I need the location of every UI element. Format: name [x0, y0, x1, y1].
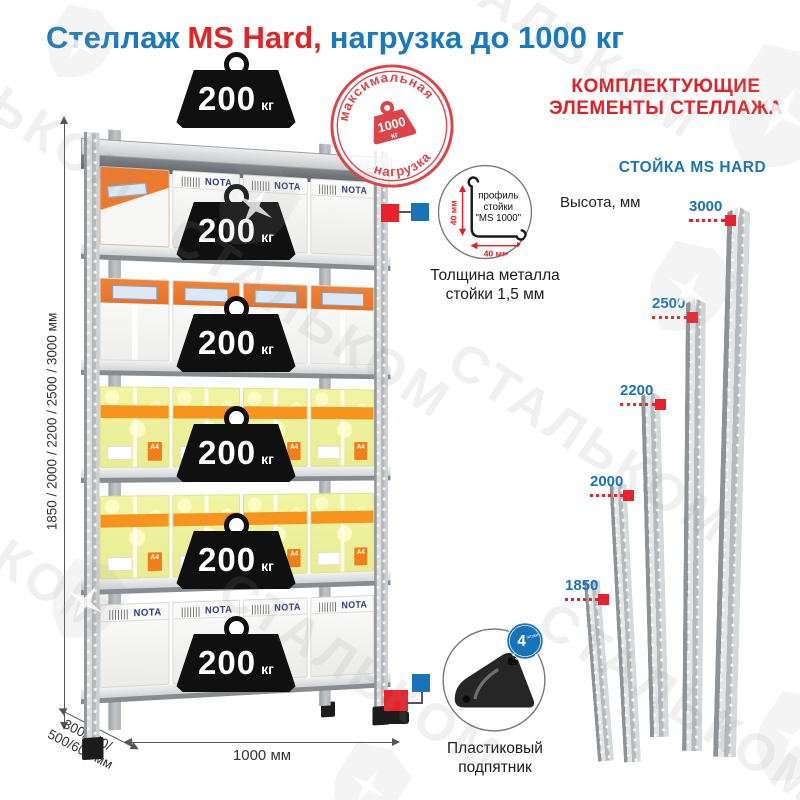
- title-suffix: нагрузка до 1000 кг: [330, 20, 624, 55]
- quantity-badge: 4 штуки в комплекте: [506, 622, 544, 660]
- badge-quantity: 4: [517, 633, 526, 650]
- components-heading-line2: ЭЛЕМЕНТЫ СТЕЛЛАЖА: [540, 98, 792, 120]
- callout-marker-red-bottom: [384, 690, 408, 711]
- paper-box-a4: A4: [100, 386, 170, 468]
- post-2500: [682, 299, 706, 751]
- load-value: 200: [198, 324, 256, 362]
- load-unit: кг: [261, 558, 274, 574]
- dotted-leader-line: [652, 316, 687, 319]
- height-leader: [565, 593, 609, 605]
- callout-marker-blue-bottom: [412, 674, 430, 692]
- dotted-leader-line: [590, 494, 623, 497]
- height-leader: [689, 214, 736, 226]
- dotted-leader-line: [620, 403, 655, 406]
- post-2000: [609, 482, 641, 763]
- load-unit: кг: [261, 451, 274, 467]
- weight-body: 200кг: [174, 314, 298, 372]
- profile-label-2: стойки: [483, 202, 513, 213]
- shelf-load-weight-icon: 200кг: [174, 52, 298, 128]
- height-callout-2000: 2000: [590, 474, 634, 501]
- a4-label: A4: [354, 547, 367, 565]
- post-2200: [641, 392, 669, 737]
- a4-label: A4: [354, 442, 367, 460]
- rack-front-post-left: [84, 132, 100, 746]
- profile-caption-line1: Толщина металла: [420, 266, 570, 285]
- box-brand-label: NOTA: [205, 605, 232, 617]
- paper-box-a4: A4: [311, 389, 375, 467]
- page-title: СтеллажMS Hard,нагрузка до 1000 кг: [46, 20, 624, 56]
- height-value: 3000: [689, 199, 736, 214]
- foot-caption-line1: Пластиковый: [425, 739, 565, 758]
- box-brand-label: NOTA: [134, 607, 162, 619]
- load-value: 200: [198, 644, 256, 682]
- height-value: 2000: [590, 474, 634, 489]
- paper-box-a4: A4: [311, 493, 375, 574]
- paper-box-nota: NOTA: [100, 602, 170, 688]
- product-infographic: СтеллажMS Hard,нагрузка до 1000 кг 1850 …: [0, 0, 800, 800]
- red-square-marker: [687, 312, 698, 323]
- weight-body: 200кг: [174, 70, 298, 128]
- height-leader: [652, 311, 698, 323]
- height-dimension-label: 1850 / 2000 / 2200 / 2500 / 3000 мм: [45, 117, 60, 727]
- paper-box-a4: A4: [100, 495, 170, 580]
- height-leader: [590, 489, 634, 501]
- post-section-subheading: СТОЙКА MS HARD: [590, 159, 795, 177]
- foot-caption: Пластиковый подпятник: [425, 739, 565, 777]
- height-value: 1850: [565, 578, 609, 593]
- shelf-load-weight-icon: 200кг: [174, 513, 298, 589]
- profile-dim-horizontal: 40 мм.: [484, 248, 511, 258]
- paper-box-orange-top: [311, 285, 375, 365]
- components-heading: КОМПЛЕКТУЮЩИЕ ЭЛЕМЕНТЫ СТЕЛЛАЖА: [540, 76, 792, 120]
- load-value: 200: [198, 541, 256, 579]
- height-callout-3000: 3000: [689, 199, 736, 226]
- red-square-marker: [655, 399, 666, 410]
- barcode: [319, 602, 337, 612]
- load-unit: кг: [261, 97, 274, 113]
- components-heading-line1: КОМПЛЕКТУЮЩИЕ: [540, 76, 792, 98]
- load-value: 200: [198, 80, 256, 118]
- rack-foot: [82, 737, 103, 760]
- callout-marker-red-top: [381, 204, 399, 222]
- profile-caption: Толщина металла стойки 1,5 мм: [420, 266, 570, 304]
- title-product-name: MS Hard,: [187, 20, 321, 55]
- height-callout-2200: 2200: [620, 383, 666, 410]
- a4-label: A4: [147, 552, 161, 571]
- load-value: 200: [198, 434, 256, 472]
- foot-caption-line2: подпятник: [425, 758, 565, 777]
- height-value: 2200: [620, 383, 666, 398]
- profile-caption-line2: стойки 1,5 мм: [420, 285, 570, 304]
- weight-body: 200кг: [174, 202, 298, 260]
- red-square-marker: [598, 594, 609, 605]
- shelf-load-weight-icon: 200кг: [174, 296, 298, 372]
- callout-marker-blue-top: [411, 203, 429, 221]
- height-dimension-line: [64, 118, 65, 728]
- shelf-load-weight-icon: 200кг: [174, 616, 298, 692]
- weight-body: 200кг: [174, 531, 298, 589]
- rack-front-post-right: [374, 151, 388, 716]
- weight-body: 200кг: [174, 634, 298, 692]
- stalkom-shield-watermark: [731, 673, 800, 800]
- profile-dim-vertical: 40 мм: [448, 200, 458, 225]
- a4-label: A4: [147, 442, 161, 461]
- barcode: [252, 604, 270, 614]
- height-section-label: Высота, мм: [560, 194, 640, 211]
- box-brand-label: NOTA: [274, 602, 301, 614]
- load-unit: кг: [261, 341, 274, 357]
- paper-box-orange-side: [100, 166, 170, 248]
- load-value: 200: [198, 212, 256, 250]
- dotted-leader-line: [689, 219, 725, 222]
- profile-label-1: профиль: [478, 191, 518, 202]
- dotted-leader-line: [565, 598, 598, 601]
- height-value: 2500: [652, 296, 698, 311]
- paper-box-nota: NOTA: [311, 595, 375, 677]
- height-callout-1850: 1850: [565, 578, 609, 605]
- red-square-marker: [623, 490, 634, 501]
- height-callout-2500: 2500: [652, 296, 698, 323]
- red-square-marker: [725, 215, 736, 226]
- load-unit: кг: [261, 229, 274, 245]
- post-1850: [584, 579, 614, 762]
- height-leader: [620, 398, 666, 410]
- shelf-load-weight-icon: 200кг: [174, 406, 298, 482]
- weight-body: 200кг: [174, 424, 298, 482]
- box-brand-label: NOTA: [342, 600, 368, 611]
- rack-foot-detail: [383, 711, 409, 724]
- max-load-stamp: максимальная нагрузка 1000 кг: [328, 62, 456, 190]
- load-unit: кг: [261, 661, 274, 677]
- post-3000: [713, 207, 750, 757]
- shelf-load-weight-icon: 200кг: [174, 184, 298, 260]
- profile-label-3: "MS 1000": [475, 213, 521, 224]
- barcode: [109, 609, 128, 620]
- paper-box-orange-top: [100, 278, 170, 362]
- foot-hole: [463, 695, 470, 702]
- title-prefix: Стеллаж: [46, 20, 179, 55]
